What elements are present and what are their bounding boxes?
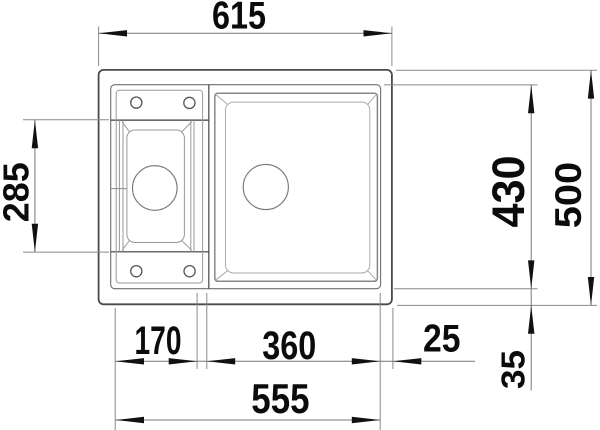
svg-text:285: 285 <box>0 162 37 222</box>
svg-text:555: 555 <box>251 375 309 422</box>
svg-text:615: 615 <box>212 0 266 38</box>
svg-text:25: 25 <box>423 318 461 361</box>
svg-text:430: 430 <box>483 156 534 228</box>
svg-text:360: 360 <box>262 324 316 368</box>
svg-text:170: 170 <box>135 319 182 363</box>
svg-text:35: 35 <box>495 350 532 389</box>
svg-text:500: 500 <box>548 162 589 229</box>
